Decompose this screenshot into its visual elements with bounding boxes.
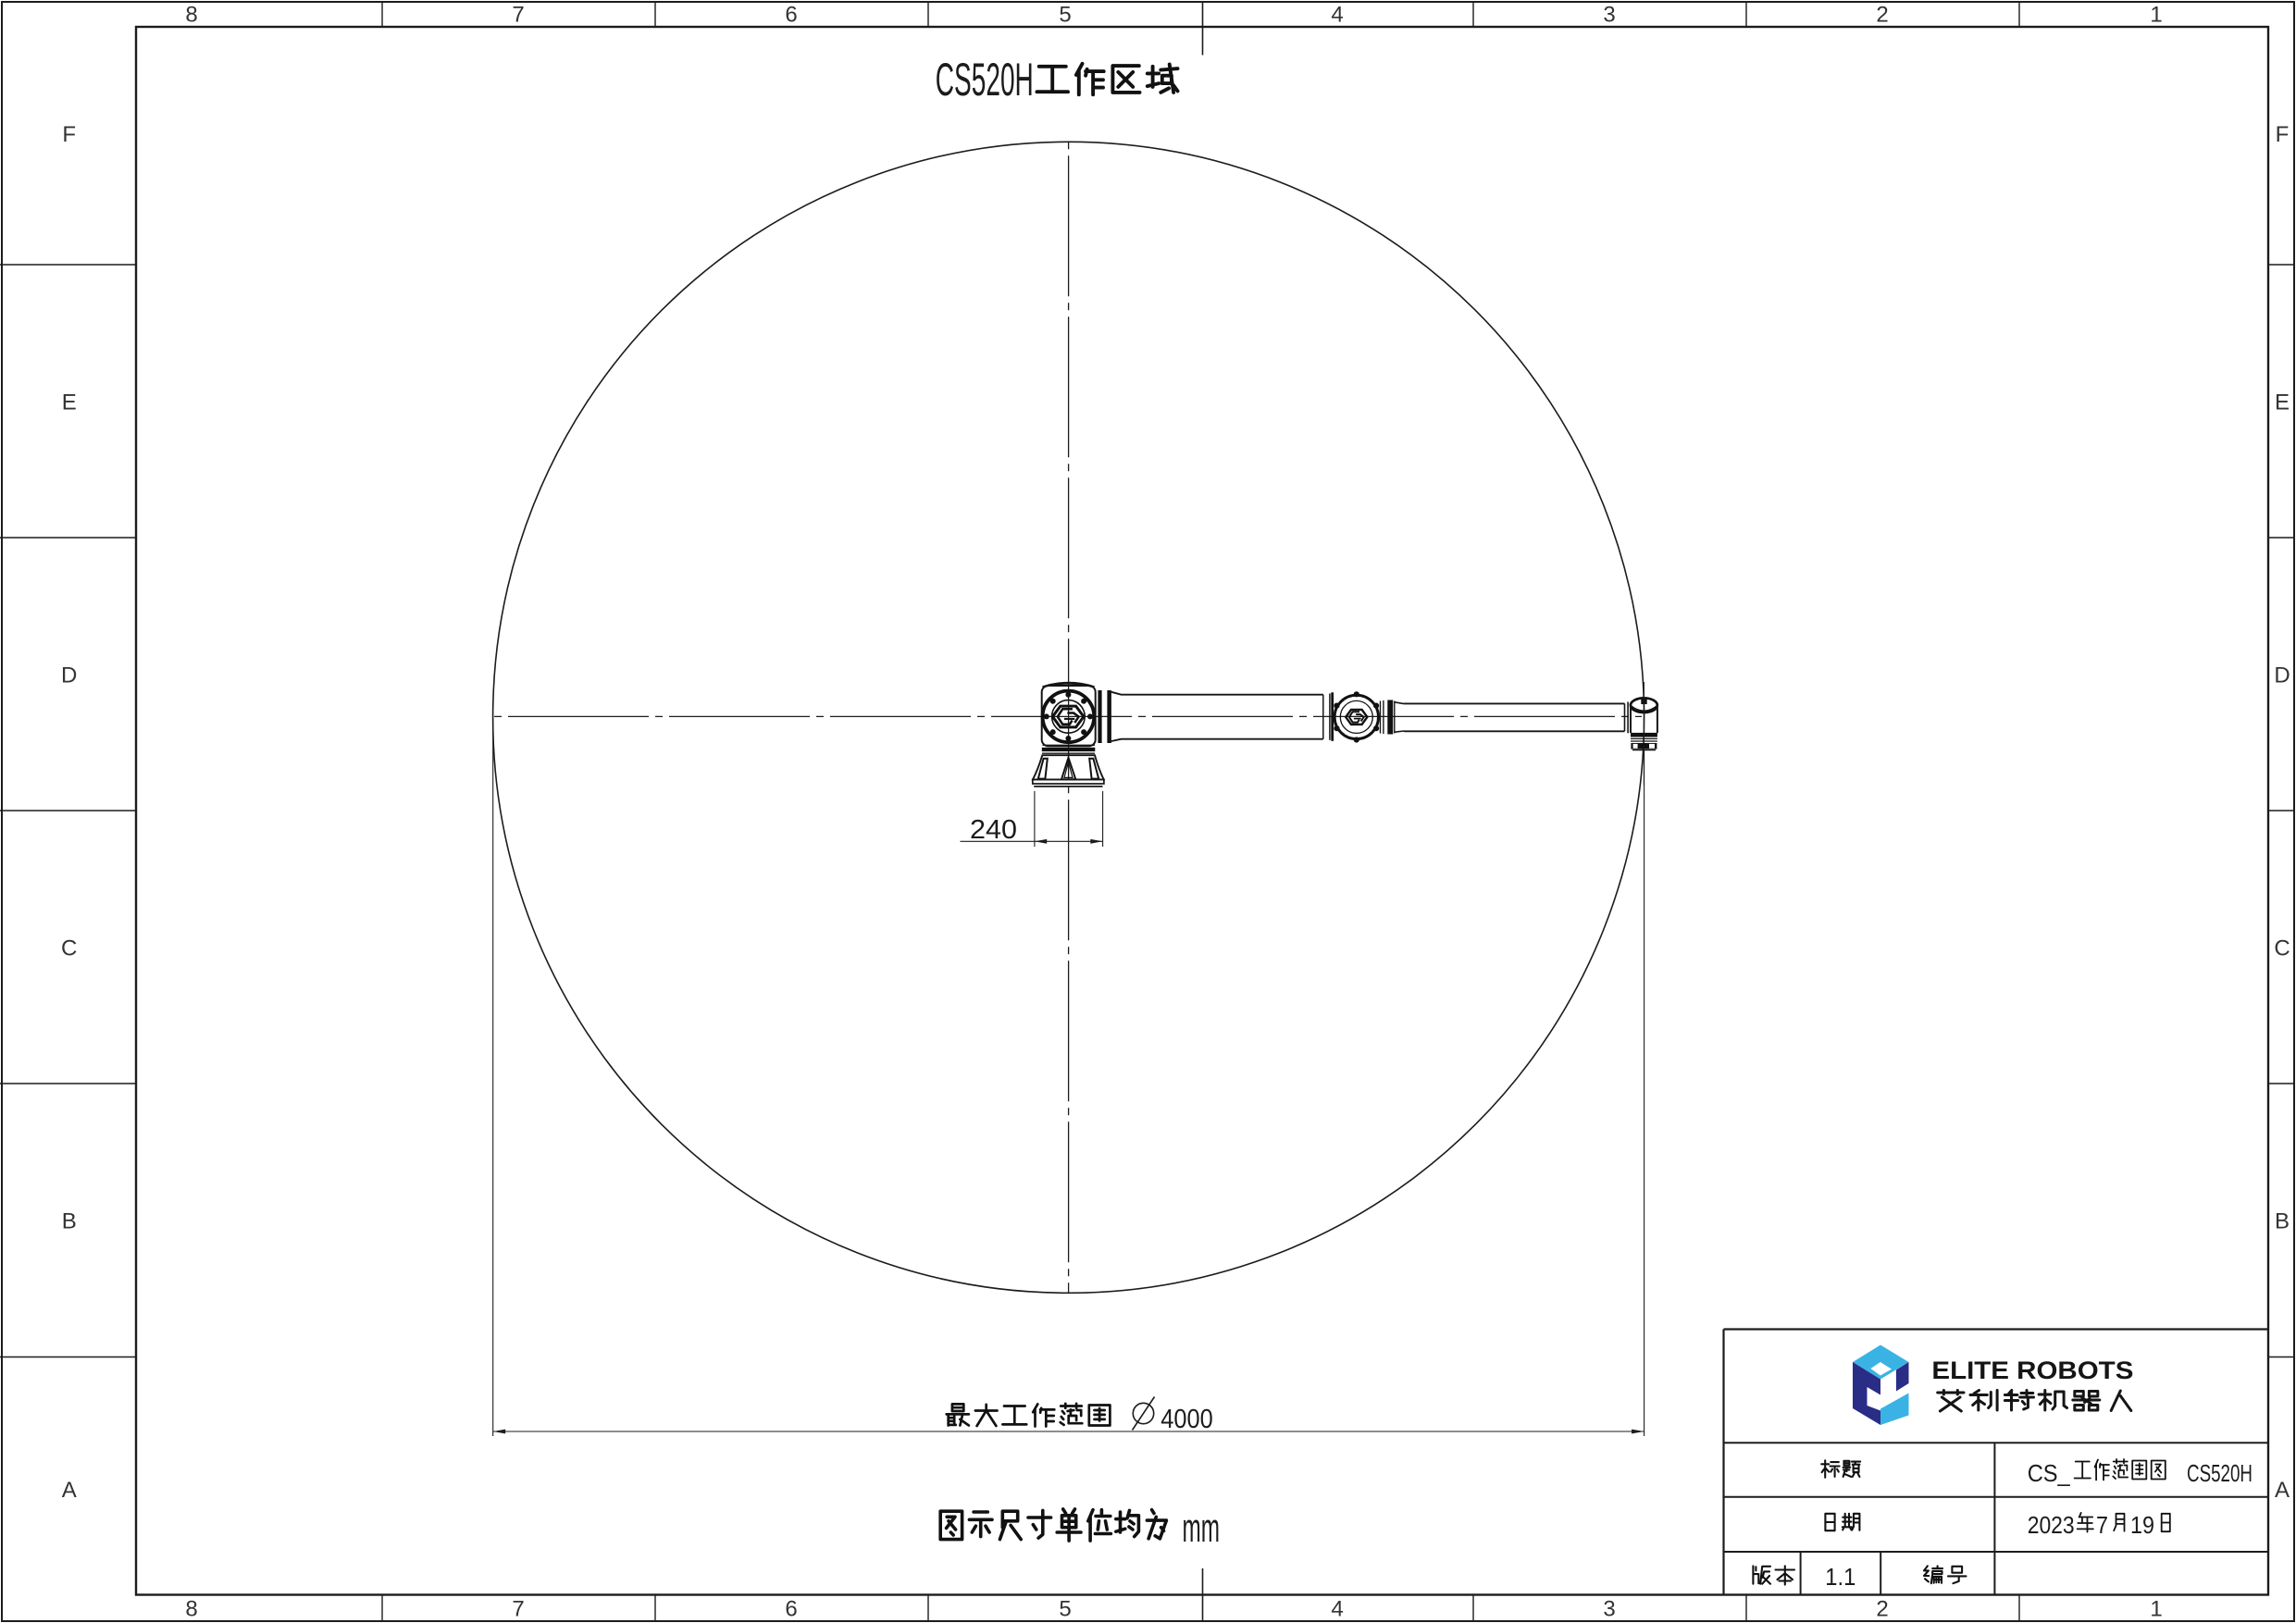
svg-text:B: B — [2275, 1208, 2290, 1233]
svg-text:D: D — [2274, 663, 2290, 688]
svg-text:4: 4 — [1331, 3, 1343, 28]
svg-text:mm: mm — [1183, 1505, 1221, 1551]
svg-text:CS520H: CS520H — [936, 54, 1034, 105]
svg-text:CS520H: CS520H — [2187, 1459, 2253, 1487]
svg-text:6: 6 — [785, 1597, 797, 1622]
svg-text:3: 3 — [1603, 3, 1615, 28]
svg-text:1: 1 — [2150, 3, 2162, 28]
svg-text:7: 7 — [512, 3, 524, 28]
svg-text:3: 3 — [1603, 1597, 1615, 1622]
svg-text:5: 5 — [1059, 1597, 1071, 1622]
svg-text:ELITE ROBOTS: ELITE ROBOTS — [1931, 1357, 2133, 1384]
svg-text:1.1: 1.1 — [1825, 1563, 1855, 1591]
svg-text:CS_: CS_ — [2028, 1459, 2070, 1487]
svg-text:8: 8 — [185, 3, 197, 28]
svg-text:5: 5 — [1059, 3, 1071, 28]
svg-text:A: A — [2275, 1478, 2290, 1503]
svg-text:2023: 2023 — [2028, 1511, 2075, 1539]
svg-text:E: E — [62, 390, 77, 415]
svg-text:4: 4 — [1331, 1597, 1343, 1622]
svg-text:19: 19 — [2130, 1511, 2154, 1539]
svg-text:E: E — [2275, 390, 2290, 415]
svg-text:F: F — [62, 122, 76, 147]
svg-text:2: 2 — [1876, 3, 1888, 28]
svg-text:7: 7 — [512, 1597, 524, 1622]
svg-text:B: B — [62, 1208, 77, 1233]
svg-text:6: 6 — [785, 3, 797, 28]
svg-text:240: 240 — [970, 815, 1017, 845]
svg-text:2: 2 — [1876, 1597, 1888, 1622]
svg-text:F: F — [2276, 122, 2290, 147]
svg-text:7: 7 — [2096, 1511, 2108, 1539]
svg-text:D: D — [61, 663, 77, 688]
svg-text:C: C — [2274, 935, 2290, 960]
svg-text:C: C — [61, 935, 77, 960]
svg-text:1: 1 — [2150, 1597, 2162, 1622]
svg-text:A: A — [62, 1478, 77, 1503]
svg-text:4000: 4000 — [1160, 1405, 1213, 1434]
svg-text:8: 8 — [185, 1597, 197, 1622]
